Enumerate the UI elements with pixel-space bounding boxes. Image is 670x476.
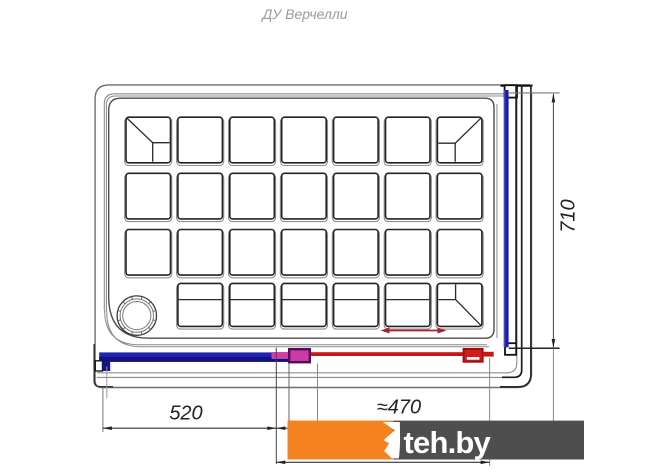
- svg-text:≈470: ≈470: [377, 397, 421, 419]
- svg-text:710: 710: [558, 199, 580, 232]
- svg-text:ДУ Верчелли: ДУ Верчелли: [260, 6, 347, 22]
- svg-text:teh.by: teh.by: [404, 425, 492, 460]
- svg-text:520: 520: [169, 403, 202, 425]
